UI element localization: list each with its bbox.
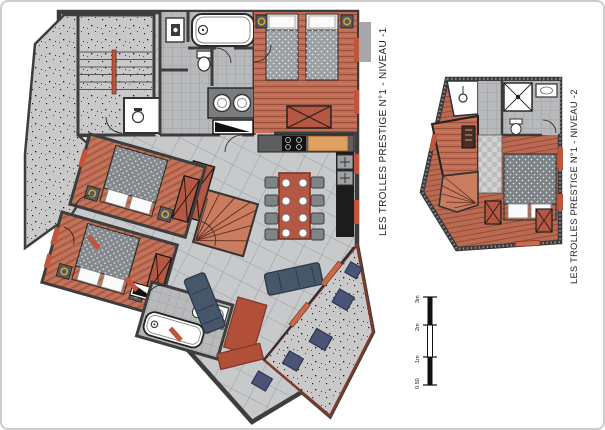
plan-title-niveau-2: LES TROLLES PRESTIGE N°1 - NIVEAU -2 (569, 76, 585, 284)
toilet-icon (510, 119, 522, 135)
bedroom-1 (254, 12, 357, 133)
bathroom-1 (160, 12, 254, 152)
bathtub (192, 14, 254, 46)
stair-handrail (112, 50, 116, 94)
interior-staircase (439, 172, 478, 212)
toilet-icon (197, 51, 211, 71)
double-vanity (208, 88, 254, 118)
neighbour-balcony (359, 22, 371, 62)
sauna-stove (462, 126, 475, 148)
floorplan-sheet: LES TROLLES PRESTIGE N°1 - NIVEAU -1 LES… (0, 0, 605, 430)
plan-title-niveau-1: LES TROLLES PRESTIGE N°1 - NIVEAU -1 (378, 14, 394, 236)
plan-niveau-1 (25, 12, 373, 422)
plan-niveau-2 (422, 79, 563, 249)
scale-bar (423, 297, 437, 385)
scale-label-1m: 1m (415, 349, 425, 369)
cooktop-icon (282, 136, 306, 151)
hallway (478, 81, 502, 135)
sliding-door-marker (516, 240, 540, 246)
washbasin-icon (133, 112, 144, 123)
wc-sink-room (124, 98, 160, 133)
counter-wood-top (308, 136, 348, 151)
scale-label-3m: 3m (415, 289, 425, 309)
scale-label-050: 0.50 (415, 374, 425, 394)
washbasin-icon (166, 18, 184, 42)
shower-room (502, 81, 560, 135)
washing-machine (213, 120, 253, 134)
washbasin-icon (536, 84, 557, 97)
twin-bed (306, 14, 338, 80)
hall-checker-tiles (478, 135, 502, 193)
nightstand-lamp (256, 15, 267, 28)
shower-icon (504, 83, 532, 111)
dining-area (265, 173, 324, 240)
nightstand-lamp (341, 15, 353, 28)
scale-label-2m: 2m (415, 317, 425, 337)
floorplans-canvas (2, 2, 605, 430)
dresser (287, 106, 331, 128)
